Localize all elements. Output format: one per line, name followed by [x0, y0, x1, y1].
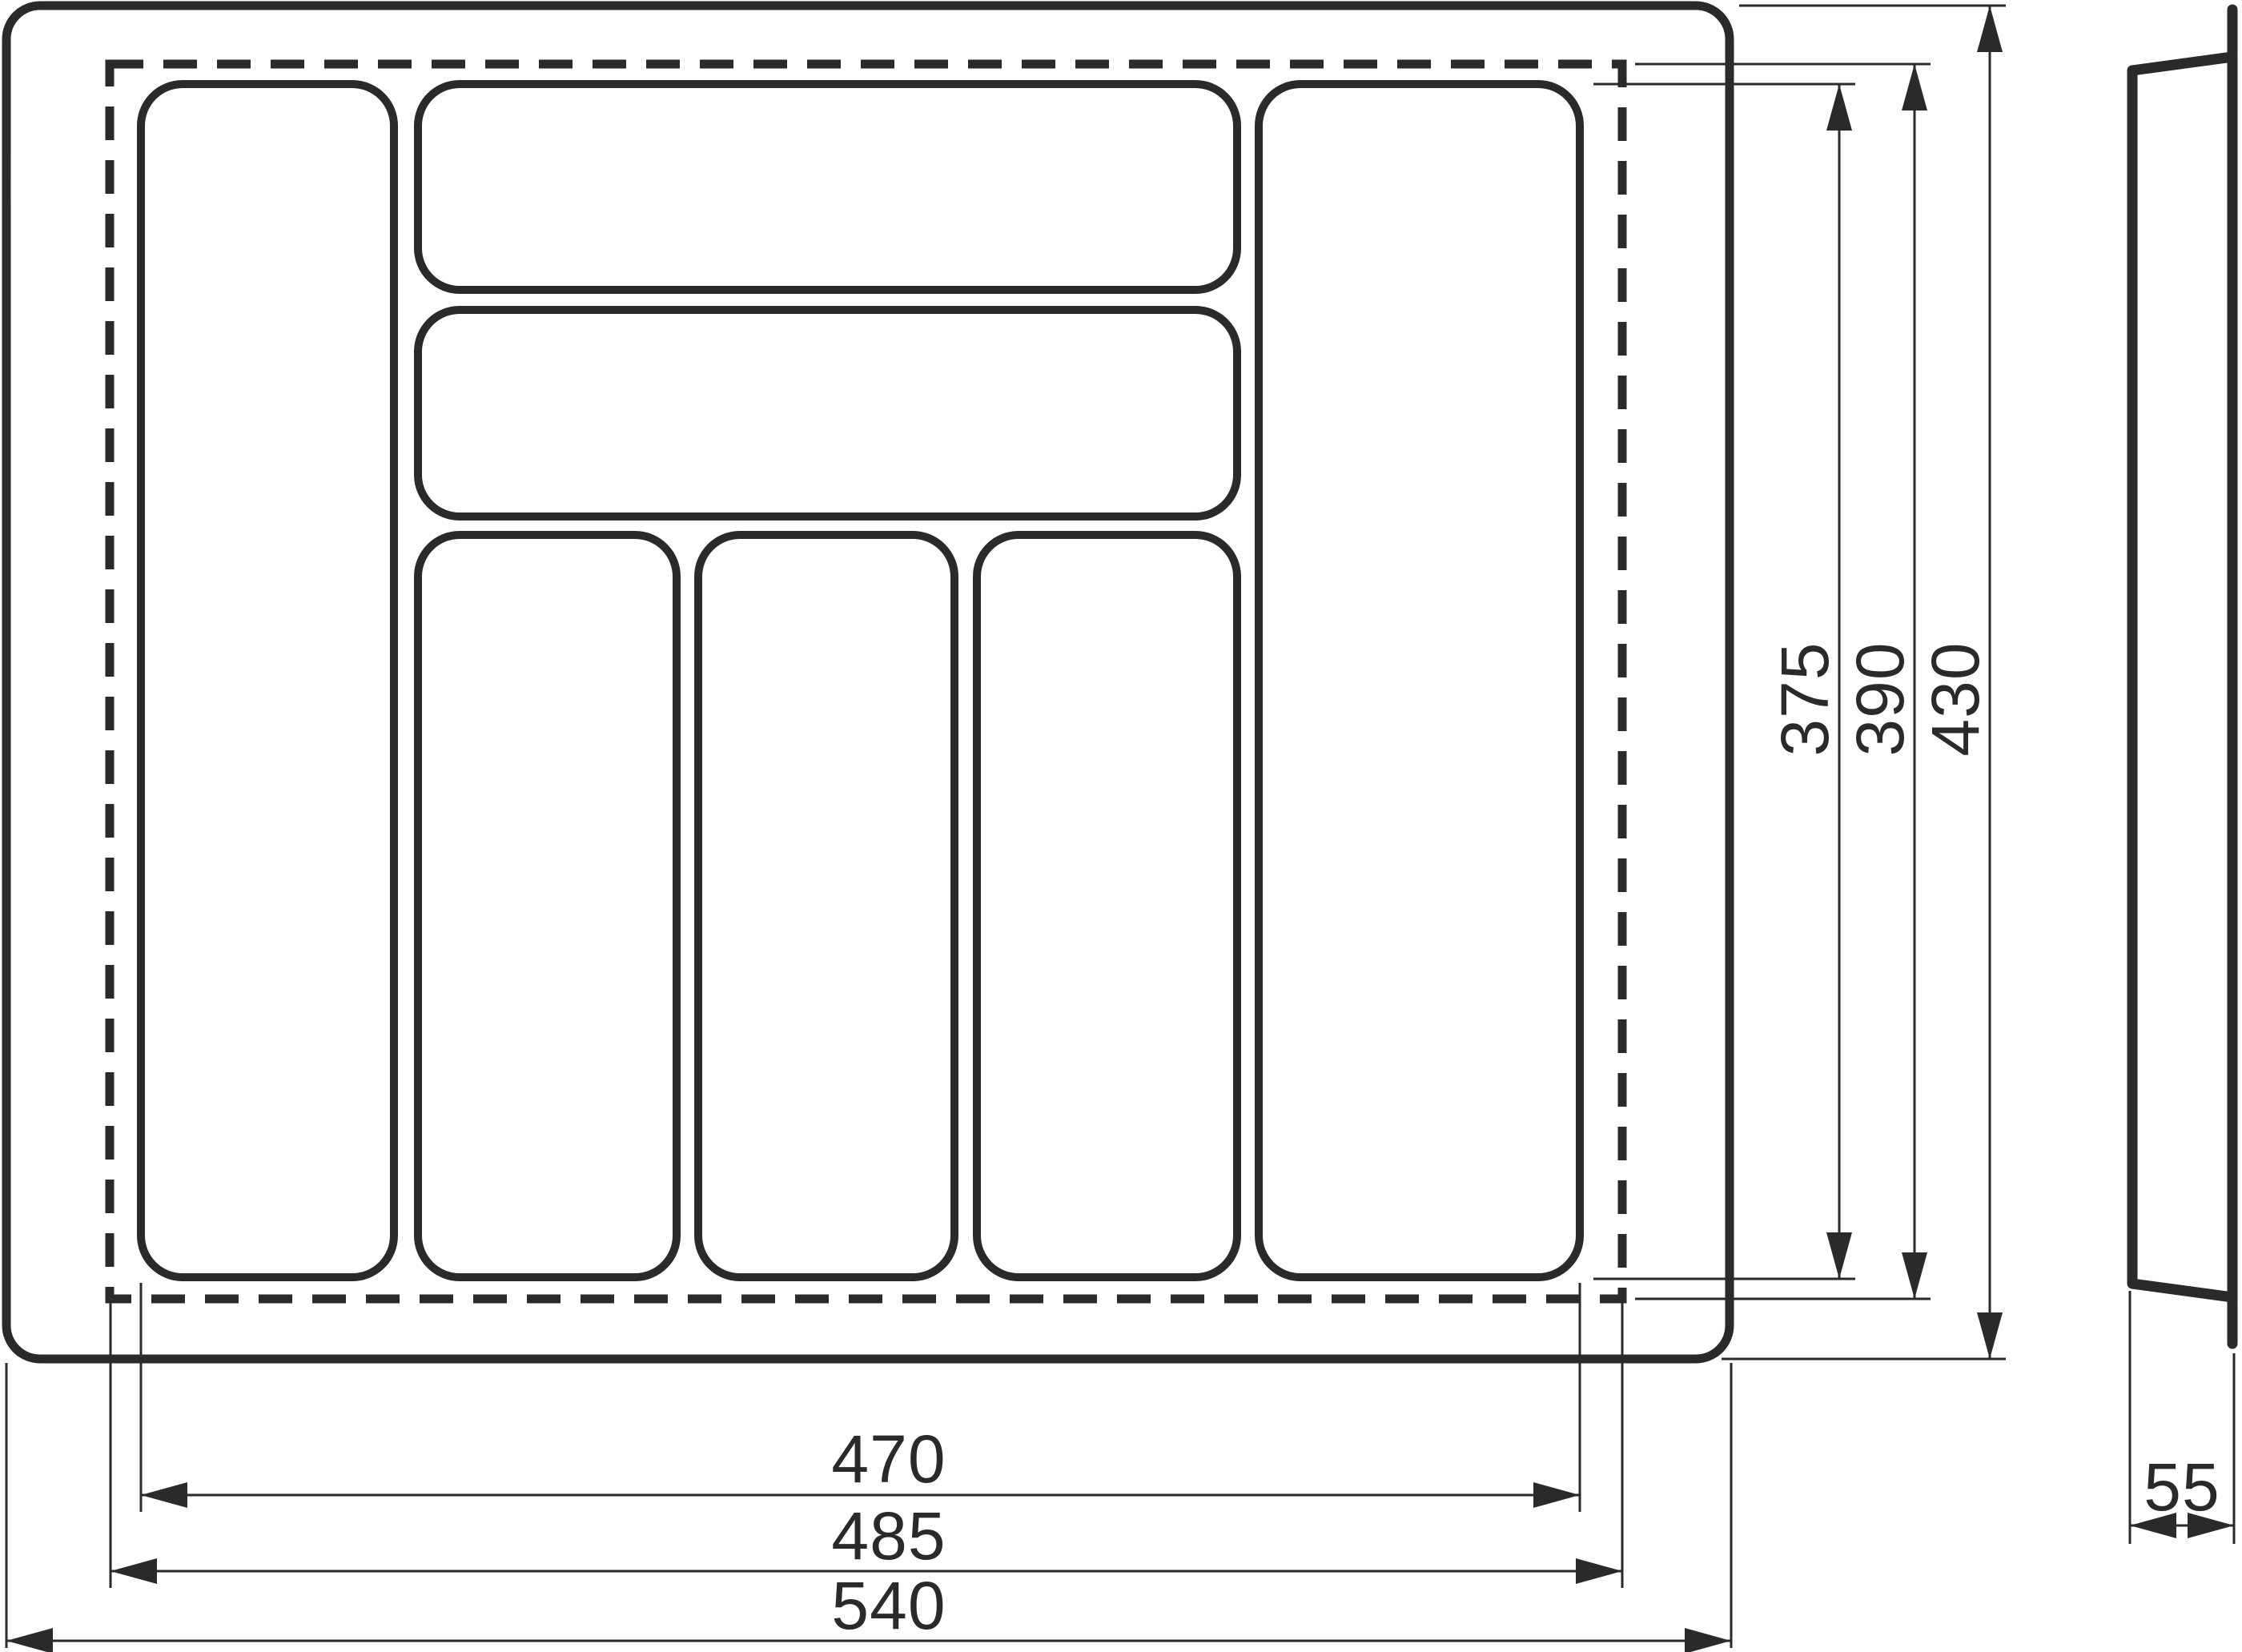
arrow-390-bottom — [1902, 1252, 1927, 1299]
technical-drawing-canvas: 470 485 540 375 390 430 55 — [0, 0, 2242, 1652]
dimension-lines — [6, 6, 2234, 1652]
arrow-485-right — [1576, 1558, 1622, 1584]
arrow-430-top — [1977, 6, 2003, 52]
arrow-470-left — [141, 1482, 187, 1508]
label-width-470: 470 — [831, 1421, 946, 1497]
side-profile-body — [2132, 57, 2232, 1297]
compartment-slot-2 — [698, 535, 954, 1277]
arrow-540-right — [1685, 1628, 1731, 1652]
side-view — [2132, 10, 2232, 1344]
compartment-top-wide — [418, 84, 1237, 290]
compartment-slot-3 — [977, 535, 1237, 1277]
compartment-second-wide — [418, 310, 1237, 517]
arrow-470-right — [1533, 1482, 1580, 1508]
label-height-375: 375 — [1767, 641, 1842, 756]
trim-cut-dashed-line — [110, 64, 1622, 1299]
label-height-430: 430 — [1918, 641, 1993, 756]
tray-outer-outline — [6, 6, 1730, 1359]
arrow-375-bottom — [1826, 1232, 1852, 1279]
label-width-485: 485 — [831, 1498, 946, 1574]
dimension-labels: 470 485 540 375 390 430 55 — [831, 641, 2220, 1643]
label-height-390: 390 — [1842, 641, 1918, 756]
label-width-540: 540 — [831, 1568, 946, 1643]
arrow-485-left — [110, 1558, 157, 1584]
compartment-slot-1 — [418, 535, 677, 1277]
arrow-390-top — [1902, 64, 1927, 111]
cutlery-tray-dimension-drawing: 470 485 540 375 390 430 55 — [0, 0, 2242, 1652]
arrow-375-top — [1826, 84, 1852, 131]
compartment-left-tall — [141, 84, 394, 1277]
plan-view — [6, 6, 1730, 1359]
extension-lines — [6, 6, 2234, 1648]
label-depth-55: 55 — [2144, 1449, 2220, 1525]
arrow-540-left — [6, 1628, 53, 1652]
arrow-430-bottom — [1977, 1312, 2003, 1359]
compartment-right-tall — [1259, 84, 1580, 1277]
